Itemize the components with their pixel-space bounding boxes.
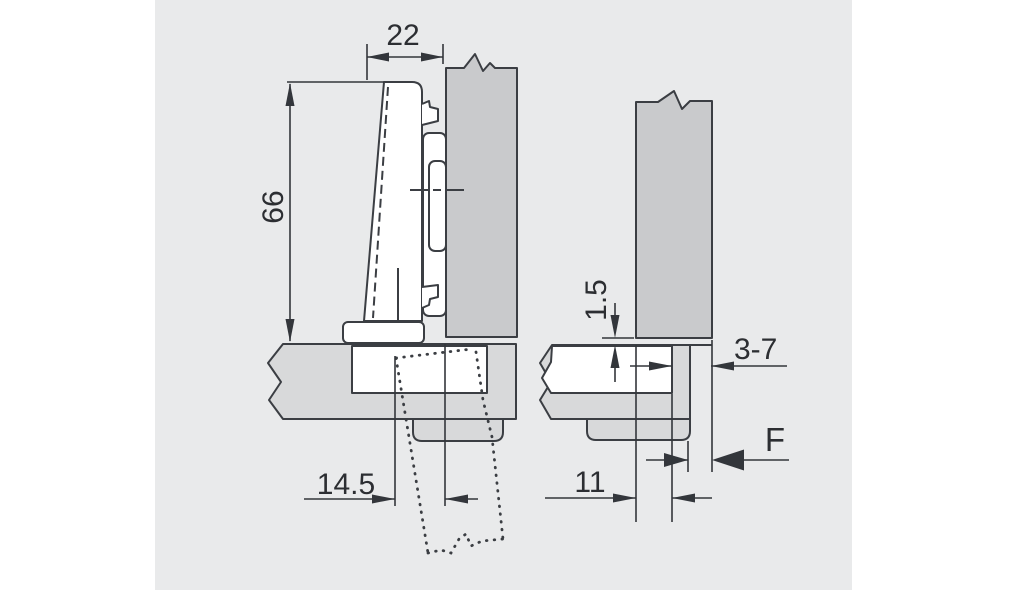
dim-label-66: 66	[257, 190, 290, 223]
dim-label-22: 22	[386, 19, 419, 52]
dim-label-11: 11	[574, 466, 605, 499]
dim-label-f: F	[765, 421, 785, 458]
dim-label-1-5: 1.5	[580, 279, 613, 321]
dim-label-14-5: 14.5	[317, 468, 375, 501]
dim-label-3-7: 3-7	[734, 333, 777, 366]
door-panel	[636, 91, 712, 338]
hinge-cup	[587, 419, 690, 440]
cup-flange	[343, 322, 424, 343]
hinge-diagram-page: 22 66 14.5	[0, 0, 1014, 600]
cup-hole-cutout	[352, 346, 487, 393]
mounting-plate-boss	[429, 161, 446, 251]
hinge-technical-diagram: 22 66 14.5	[0, 0, 1014, 600]
door-panel	[446, 54, 517, 337]
